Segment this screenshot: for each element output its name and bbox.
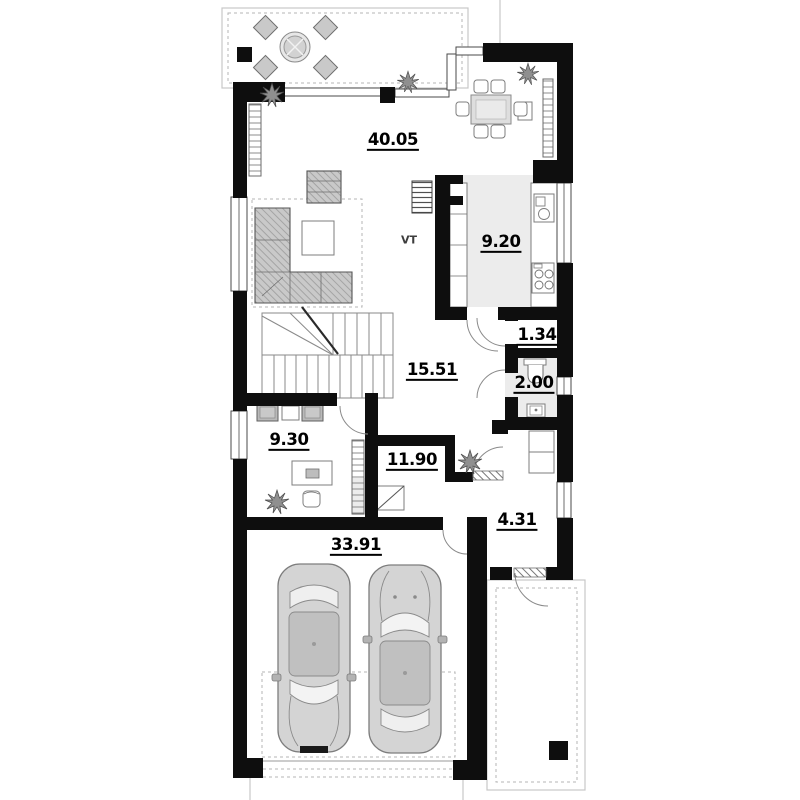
terrace-chair — [253, 55, 277, 79]
garage-cars — [272, 564, 447, 753]
dining-chair — [491, 125, 505, 138]
room-area-label-garage: 33.91 — [330, 536, 382, 556]
dining-chair — [491, 80, 505, 93]
dining-chair — [514, 102, 527, 116]
floor-plan-page: 40.05 9.20 VT 1.34 2.00 15.51 9.30 11.90… — [0, 0, 800, 800]
staircase — [262, 307, 393, 398]
terrace-chair — [313, 55, 337, 79]
room-area-label-closet: 1.34 — [516, 326, 557, 346]
dining-chair — [474, 125, 488, 138]
plant-icon — [517, 63, 539, 85]
closet-door-arc — [477, 318, 505, 346]
terrace-chair — [253, 15, 277, 39]
front-door-leaf — [514, 568, 546, 577]
car-front-bumper — [300, 746, 328, 753]
kitchen-sink — [534, 194, 554, 222]
terrace-table-set — [237, 15, 338, 79]
room-label-vt: VT — [401, 234, 417, 247]
armchair — [307, 171, 341, 203]
window — [557, 183, 571, 263]
room-area-label-living: 40.05 — [367, 131, 419, 151]
glass-wall-post — [380, 87, 395, 103]
radiator — [249, 104, 261, 176]
radiator — [412, 181, 432, 213]
office-door-arc — [340, 406, 368, 434]
floor-plan-drawing — [0, 0, 800, 800]
window — [557, 482, 571, 518]
radiator — [352, 440, 364, 514]
porch-column — [549, 741, 568, 760]
garage-door-arc — [443, 530, 467, 554]
toilet-tank — [524, 359, 546, 365]
room-area-label-wc: 2.00 — [513, 374, 554, 394]
plant-icon — [458, 450, 482, 474]
window — [231, 197, 247, 291]
terrace-outline — [222, 8, 468, 88]
computer — [306, 469, 319, 478]
plant-icon — [265, 490, 289, 514]
room-area-label-utility: 11.90 — [386, 451, 438, 471]
dining-chair — [456, 102, 469, 116]
terrace-chair — [313, 15, 337, 39]
vestibule-door-leaf — [473, 471, 503, 480]
room-area-label-kitchen: 9.20 — [480, 233, 521, 253]
front-door-arc — [515, 573, 548, 606]
room-area-label-office: 9.30 — [268, 431, 309, 451]
vt-shaft-wall — [435, 175, 450, 307]
room-area-label-vestibule: 4.31 — [496, 511, 537, 531]
window — [231, 411, 247, 459]
pergola-post — [237, 47, 252, 62]
dining-chair — [474, 80, 488, 93]
porch-outline — [487, 580, 585, 790]
cabinet — [282, 406, 299, 420]
office-furniture — [257, 404, 332, 507]
window — [557, 377, 571, 395]
wc-door-arc — [477, 370, 505, 398]
coffee-table — [302, 221, 334, 255]
car — [363, 565, 447, 753]
radiator — [543, 79, 553, 157]
room-area-label-hall: 15.51 — [406, 361, 458, 381]
car — [272, 564, 356, 753]
dining-set — [456, 80, 527, 138]
